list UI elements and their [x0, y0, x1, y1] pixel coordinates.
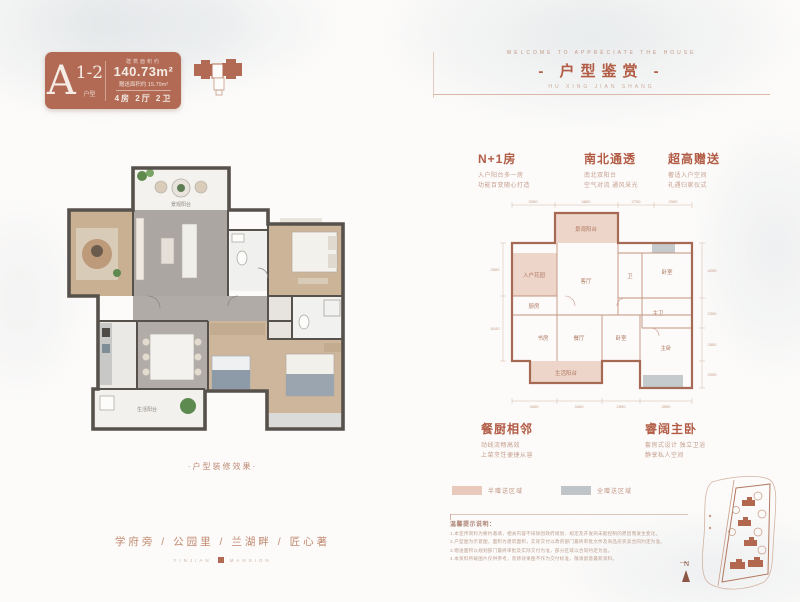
- site-map: N: [672, 474, 790, 598]
- hallway: [133, 296, 268, 321]
- table-plant: [177, 184, 185, 192]
- keyplan-icon: [190, 50, 246, 106]
- svg-text:2900: 2900: [617, 404, 627, 409]
- brand-line: YINJIAN MANSION: [45, 557, 400, 563]
- room-labels: 景观阳台 入户花园 客厅 卫 卧室 主卫 厨房 书房 餐厅 卧室 主卧 生活阳台: [523, 225, 673, 377]
- brand-right: MANSION: [230, 558, 272, 563]
- fill-bay-2: [643, 375, 683, 388]
- svg-text:2900: 2900: [669, 199, 679, 204]
- dining-chair: [143, 369, 150, 376]
- pillow: [328, 254, 336, 268]
- svg-text:4200: 4200: [708, 268, 718, 273]
- svg-text:卧室: 卧室: [661, 268, 673, 276]
- svg-text:2500: 2500: [708, 342, 718, 347]
- header-subtitle: HU XING JIAN SHANG: [433, 84, 770, 90]
- callout-line: 奢适入户空间: [668, 171, 768, 181]
- unit-stats: 建筑面积约 140.73m² 赠送面积约 15.79m² 4房 2厅 2卫: [106, 58, 181, 104]
- callout-line: 静享私人空间: [645, 451, 745, 461]
- area-value: 140.73m²: [110, 65, 177, 79]
- legend-label: 半赠送区域: [488, 486, 523, 495]
- svg-text:卫: 卫: [627, 273, 633, 280]
- toilet: [299, 315, 309, 329]
- bench: [298, 278, 328, 284]
- room-bath-2: [292, 296, 343, 339]
- svg-text:2000: 2000: [708, 372, 718, 377]
- dining-chair: [195, 369, 202, 376]
- svg-text:书房: 书房: [537, 334, 549, 342]
- svg-text:主卧: 主卧: [660, 344, 672, 352]
- callout-line: 功能百变随心打造: [478, 181, 578, 191]
- washer: [100, 396, 114, 410]
- building-block-left: [194, 60, 214, 79]
- fill-bay-1: [652, 243, 675, 253]
- rendered-floorplan: 景观阳台 生活阳台: [62, 158, 384, 458]
- gift-area: 赠送面积约 15.79m²: [110, 80, 177, 88]
- site-road: [718, 480, 734, 586]
- callout-title: 超高赠送: [668, 150, 768, 167]
- site-boundary: [702, 476, 775, 589]
- callout-title: N+1房: [478, 150, 578, 167]
- room-count: 4房 2厅 2卫: [110, 93, 177, 104]
- callout-line: 礼遇归家仪式: [668, 181, 768, 191]
- callout-line: 套房式设计 独立卫浴: [645, 441, 745, 451]
- disclaimer-line: 1.本宣传资料为要约邀请，相关内容不排除因政府规划、规定及开发商未能控制的原因而…: [450, 530, 688, 538]
- slogan-text: 学府旁 / 公园里 / 兰湖畔 / 匠心著: [45, 534, 400, 549]
- disclaimer-block: 温馨提示说明： 1.本宣传资料为要约邀请，相关内容不排除因政府规划、规定及开发商…: [450, 514, 688, 563]
- callout-title: 睿阔主卧: [645, 420, 745, 437]
- header-tick: [433, 52, 434, 98]
- unit-letter: A: [47, 56, 76, 106]
- callout-line: 入户阳台多一房: [478, 171, 578, 181]
- callout-bonus: 超高赠送 奢适入户空间 礼遇归家仪式: [668, 150, 768, 191]
- svg-text:3300: 3300: [529, 199, 539, 204]
- header-eyebrow: WELCOME TO APPRECIATE THE HOUSE: [433, 50, 770, 56]
- brochure-page: A 1-2 户型 建筑面积约 140.73m² 赠送面积约 15.79m² 4房…: [0, 0, 800, 602]
- legend-swatch-pink: [452, 486, 482, 495]
- legend-swatch-gray: [561, 486, 591, 495]
- desk-chair: [91, 245, 103, 257]
- callout-line: 动线流畅高效: [481, 441, 581, 451]
- section-title: - 户型鉴赏 -: [433, 60, 770, 81]
- unit-balcony: [216, 90, 222, 95]
- coffee-table: [161, 238, 174, 264]
- parcel-outline: [722, 484, 770, 582]
- sink-kitchen: [102, 344, 110, 353]
- map-dot: [709, 527, 711, 529]
- pillow: [328, 236, 336, 250]
- dining-chair: [143, 354, 150, 361]
- legend: 半赠送区域 全赠送区域: [452, 486, 632, 495]
- legend-item-half-gift: 半赠送区域: [452, 486, 523, 495]
- svg-text:客厅: 客厅: [580, 277, 592, 285]
- disclaimer-heading: 温馨提示说明：: [450, 519, 688, 528]
- svg-text:主卫: 主卫: [652, 309, 664, 317]
- svg-text:生活阳台: 生活阳台: [555, 369, 578, 377]
- unit-code: A 1-2 户型: [45, 56, 105, 106]
- callout-master: 睿阔主卧 套房式设计 独立卫浴 静享私人空间: [645, 420, 745, 461]
- svg-text:入户花园: 入户花园: [523, 271, 546, 279]
- map-dot: [709, 515, 711, 517]
- disclaimer-line: 4.本资料所载图片仅供参考，装修效果图不作为交付标准，敬请留意最新资料。: [450, 555, 688, 563]
- slogan-block: 学府旁 / 公园里 / 兰湖畔 / 匠心著 YINJIAN MANSION: [45, 534, 400, 563]
- svg-text:2700: 2700: [632, 199, 642, 204]
- svg-text:3400: 3400: [575, 404, 585, 409]
- svg-text:2300: 2300: [708, 311, 718, 316]
- disclaimer-line: 2.户型图为示意图，面积为建筑面积，实际交付以政府部门最终审批文件及商品房买卖合…: [450, 538, 688, 546]
- plant: [180, 398, 196, 414]
- blanket: [212, 370, 250, 389]
- svg-text:4800: 4800: [582, 199, 592, 204]
- balcony-label: 景观阳台: [171, 201, 191, 208]
- balcony-chair: [195, 181, 207, 193]
- stove: [102, 328, 110, 337]
- render-caption: ·户型装修效果·: [45, 461, 400, 472]
- north-arrow-icon: [682, 570, 690, 582]
- closet: [268, 296, 292, 339]
- door-swings: [565, 296, 659, 336]
- tv-cabinet: [136, 218, 144, 280]
- header-rule: [433, 94, 770, 95]
- svg-text:景观阳台: 景观阳台: [575, 225, 598, 233]
- blanket: [286, 374, 334, 396]
- dining-chair: [195, 339, 202, 346]
- unit-extension: [214, 78, 224, 90]
- dining-chair: [195, 354, 202, 361]
- service-balcony-label: 生活阳台: [137, 406, 157, 413]
- svg-text:3400: 3400: [530, 404, 540, 409]
- svg-text:3300: 3300: [491, 267, 501, 272]
- badge-rule: [116, 90, 171, 91]
- master-bay: [267, 413, 343, 429]
- svg-text:厨房: 厨房: [528, 302, 540, 310]
- north-label: N: [684, 561, 689, 568]
- svg-text:3900: 3900: [662, 404, 672, 409]
- wardrobe: [324, 343, 341, 352]
- unit-number: 1-2 户型: [76, 62, 103, 106]
- dining-chair: [143, 339, 150, 346]
- section-header: WELCOME TO APPRECIATE THE HOUSE - 户型鉴赏 -…: [433, 50, 770, 95]
- svg-text:5100: 5100: [491, 326, 501, 331]
- dining-table: [150, 334, 194, 380]
- brand-square-icon: [218, 557, 224, 563]
- callout-kitchen-dining: 餐厨相邻 动线流畅高效 上菜烹饪便捷从容: [481, 420, 581, 461]
- building-footprints: [730, 497, 763, 569]
- sink: [232, 234, 244, 242]
- plant: [113, 269, 121, 277]
- unit-badge: A 1-2 户型 建筑面积约 140.73m² 赠送面积约 15.79m² 4房…: [45, 52, 181, 109]
- disclaimer-line: 3.赠送面积以规划部门最终审批及实际交付为准，部分区域以合同约定为准。: [450, 547, 688, 555]
- building-block-right: [222, 59, 242, 79]
- svg-text:餐厅: 餐厅: [573, 334, 585, 342]
- callout-n1: N+1房 入户阳台多一房 功能百变随心打造: [478, 150, 578, 191]
- callout-line: 上菜烹饪便捷从容: [481, 451, 581, 461]
- unit-type-label: 户型: [76, 84, 103, 106]
- callout-title: 餐厨相邻: [481, 420, 581, 437]
- brand-left: YINJIAN: [173, 558, 211, 563]
- wardrobe: [210, 323, 265, 335]
- plant: [137, 171, 147, 181]
- toilet: [237, 251, 247, 265]
- sofa: [182, 224, 197, 278]
- highlighted-unit: [212, 64, 223, 78]
- svg-text:卧室: 卧室: [615, 334, 627, 342]
- balcony-chair: [155, 181, 167, 193]
- area-label: 建筑面积约: [110, 58, 177, 65]
- lineart-floorplan: 3300 4800 2700 2900 3400 3400 2900 3900 …: [455, 198, 747, 410]
- legend-label: 全赠送区域: [597, 486, 632, 495]
- legend-item-full-gift: 全赠送区域: [561, 486, 632, 495]
- plant: [146, 169, 154, 177]
